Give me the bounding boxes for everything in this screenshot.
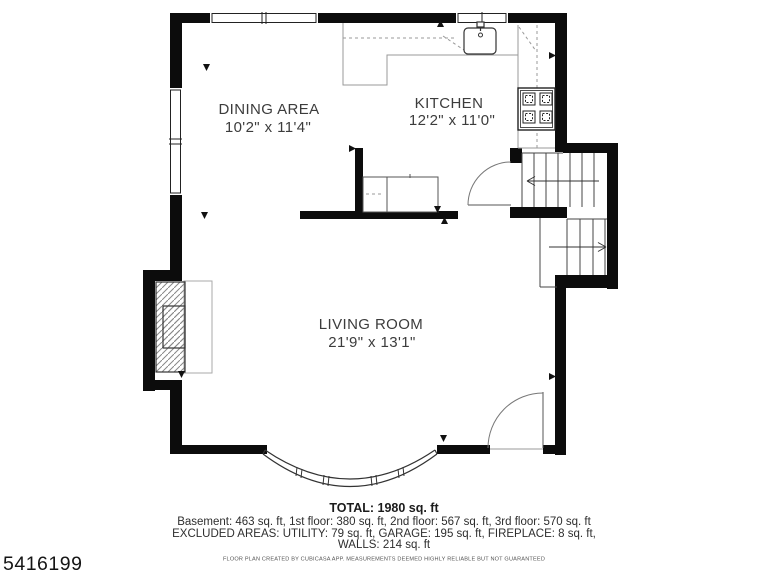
floor-areas-text: Basement: 463 sq. ft, 1st floor: 380 sq.… (177, 517, 591, 529)
total-area-text: TOTAL: 1980 sq. ft (329, 502, 438, 515)
stairs-upper-flight (522, 153, 599, 207)
room-dims-kitchen: 12'2" x 11'0" (409, 113, 495, 128)
door-arc-hall (468, 162, 511, 205)
disclaimer-text: FLOOR PLAN CREATED BY CUBICASA APP. MEAS… (223, 556, 545, 562)
stove-icon (518, 88, 555, 130)
stairs-down-arrow (549, 243, 606, 252)
floor-plan-drawing (0, 0, 768, 576)
listing-id: 5416199 (3, 555, 82, 575)
fireplace-icon (156, 281, 212, 373)
room-label-dining: DINING AREA (218, 102, 319, 117)
stairs-up-arrow (527, 177, 599, 186)
walls-area-text: WALLS: 214 sq. ft (338, 540, 430, 552)
window-top-left (210, 11, 318, 25)
bay-window (263, 450, 437, 487)
walls (143, 13, 618, 455)
room-dims-living: 21'9" x 13'1" (328, 335, 415, 350)
room-dims-dining: 10'2" x 11'4" (225, 120, 311, 135)
camera-arrows (178, 20, 556, 442)
sink-icon (464, 22, 496, 54)
floor-plan-page: DINING AREA 10'2" x 11'4" KITCHEN 12'2" … (0, 0, 768, 576)
room-label-living: LIVING ROOM (319, 317, 423, 332)
door-arc-living-room (488, 392, 543, 449)
room-label-kitchen: KITCHEN (415, 96, 484, 111)
window-left-wall (168, 88, 184, 195)
island-cabinet (363, 174, 438, 212)
